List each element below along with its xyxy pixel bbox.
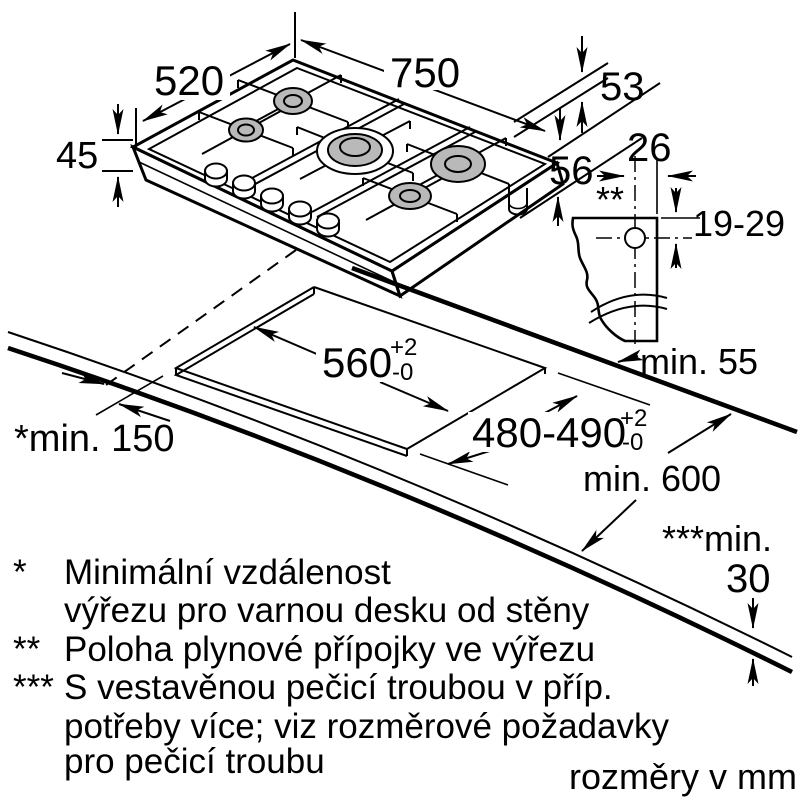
legend-marker-3: *** [13, 668, 54, 707]
dim-560-tol-plus: +2 [390, 334, 417, 361]
min30-value: 30 [726, 557, 771, 601]
diagram-canvas: 750 520 45 53 56 26 ** [0, 0, 800, 800]
legend-line-1b: výřezu pro varnou desku od stěny [64, 591, 590, 630]
burner-right [431, 146, 485, 182]
dim-480490-tol-minus: -0 [622, 429, 643, 456]
min55-arrow [618, 356, 638, 362]
min150-label: *min. 150 [14, 418, 175, 460]
legend-marker-2: ** [13, 630, 41, 669]
legend-line-3b: potřeby více; viz rozměrové požadavky [64, 707, 669, 746]
burner-front [389, 183, 431, 209]
min55-label: min. 55 [640, 341, 758, 382]
gas-connection-detail: 26 ** 19-29 [572, 126, 785, 344]
dim-560-tol-minus: -0 [392, 359, 413, 386]
legend: * Minimální vzdálenost výřezu pro varnou… [13, 553, 669, 781]
dim-53-label: 53 [600, 65, 645, 109]
dim-56-label: 56 [549, 149, 594, 193]
legend-line-1a: Minimální vzdálenost [64, 553, 391, 592]
min600-arrow-downleft [582, 500, 636, 551]
dim-45-label: 45 [56, 135, 98, 177]
burner-wok-inner [340, 138, 370, 156]
gas-note-marker: ** [596, 179, 624, 220]
hob-projection-dashed-line [106, 250, 296, 385]
burner-back-left [274, 88, 312, 114]
dim-1929-label: 19-29 [693, 203, 785, 244]
knob [233, 176, 255, 199]
dim-480490-label: 480-490 [472, 409, 626, 456]
dim-520-label: 520 [154, 57, 224, 104]
knob [317, 214, 339, 237]
units-note: rozměry v mm [569, 756, 797, 797]
installation-diagram: 750 520 45 53 56 26 ** [0, 0, 800, 800]
dim-26-label: 26 [627, 126, 672, 170]
min30-label: ***min. [662, 518, 772, 559]
legend-line-3c: pro pečicí troubu [64, 742, 325, 781]
knob [289, 202, 311, 225]
min600-label: min. 600 [583, 458, 721, 499]
dim-480490-tol-plus: +2 [620, 405, 647, 432]
legend-line-3a: S vestavěnou pečicí troubou v příp. [64, 668, 613, 707]
legend-marker-1: * [13, 553, 27, 592]
dim-750-label: 750 [390, 49, 460, 96]
min600-arrow-upright [668, 414, 731, 453]
dim-560-label: 560 [322, 339, 392, 386]
knob [205, 164, 227, 187]
knob [261, 189, 283, 212]
legend-line-2a: Poloha plynové přípojky ve výřezu [64, 630, 595, 669]
gas-connection-point [625, 228, 645, 248]
dim-45-ticks [102, 140, 133, 171]
burner-left [229, 119, 263, 142]
dim-560-arrow-downright [380, 382, 448, 411]
